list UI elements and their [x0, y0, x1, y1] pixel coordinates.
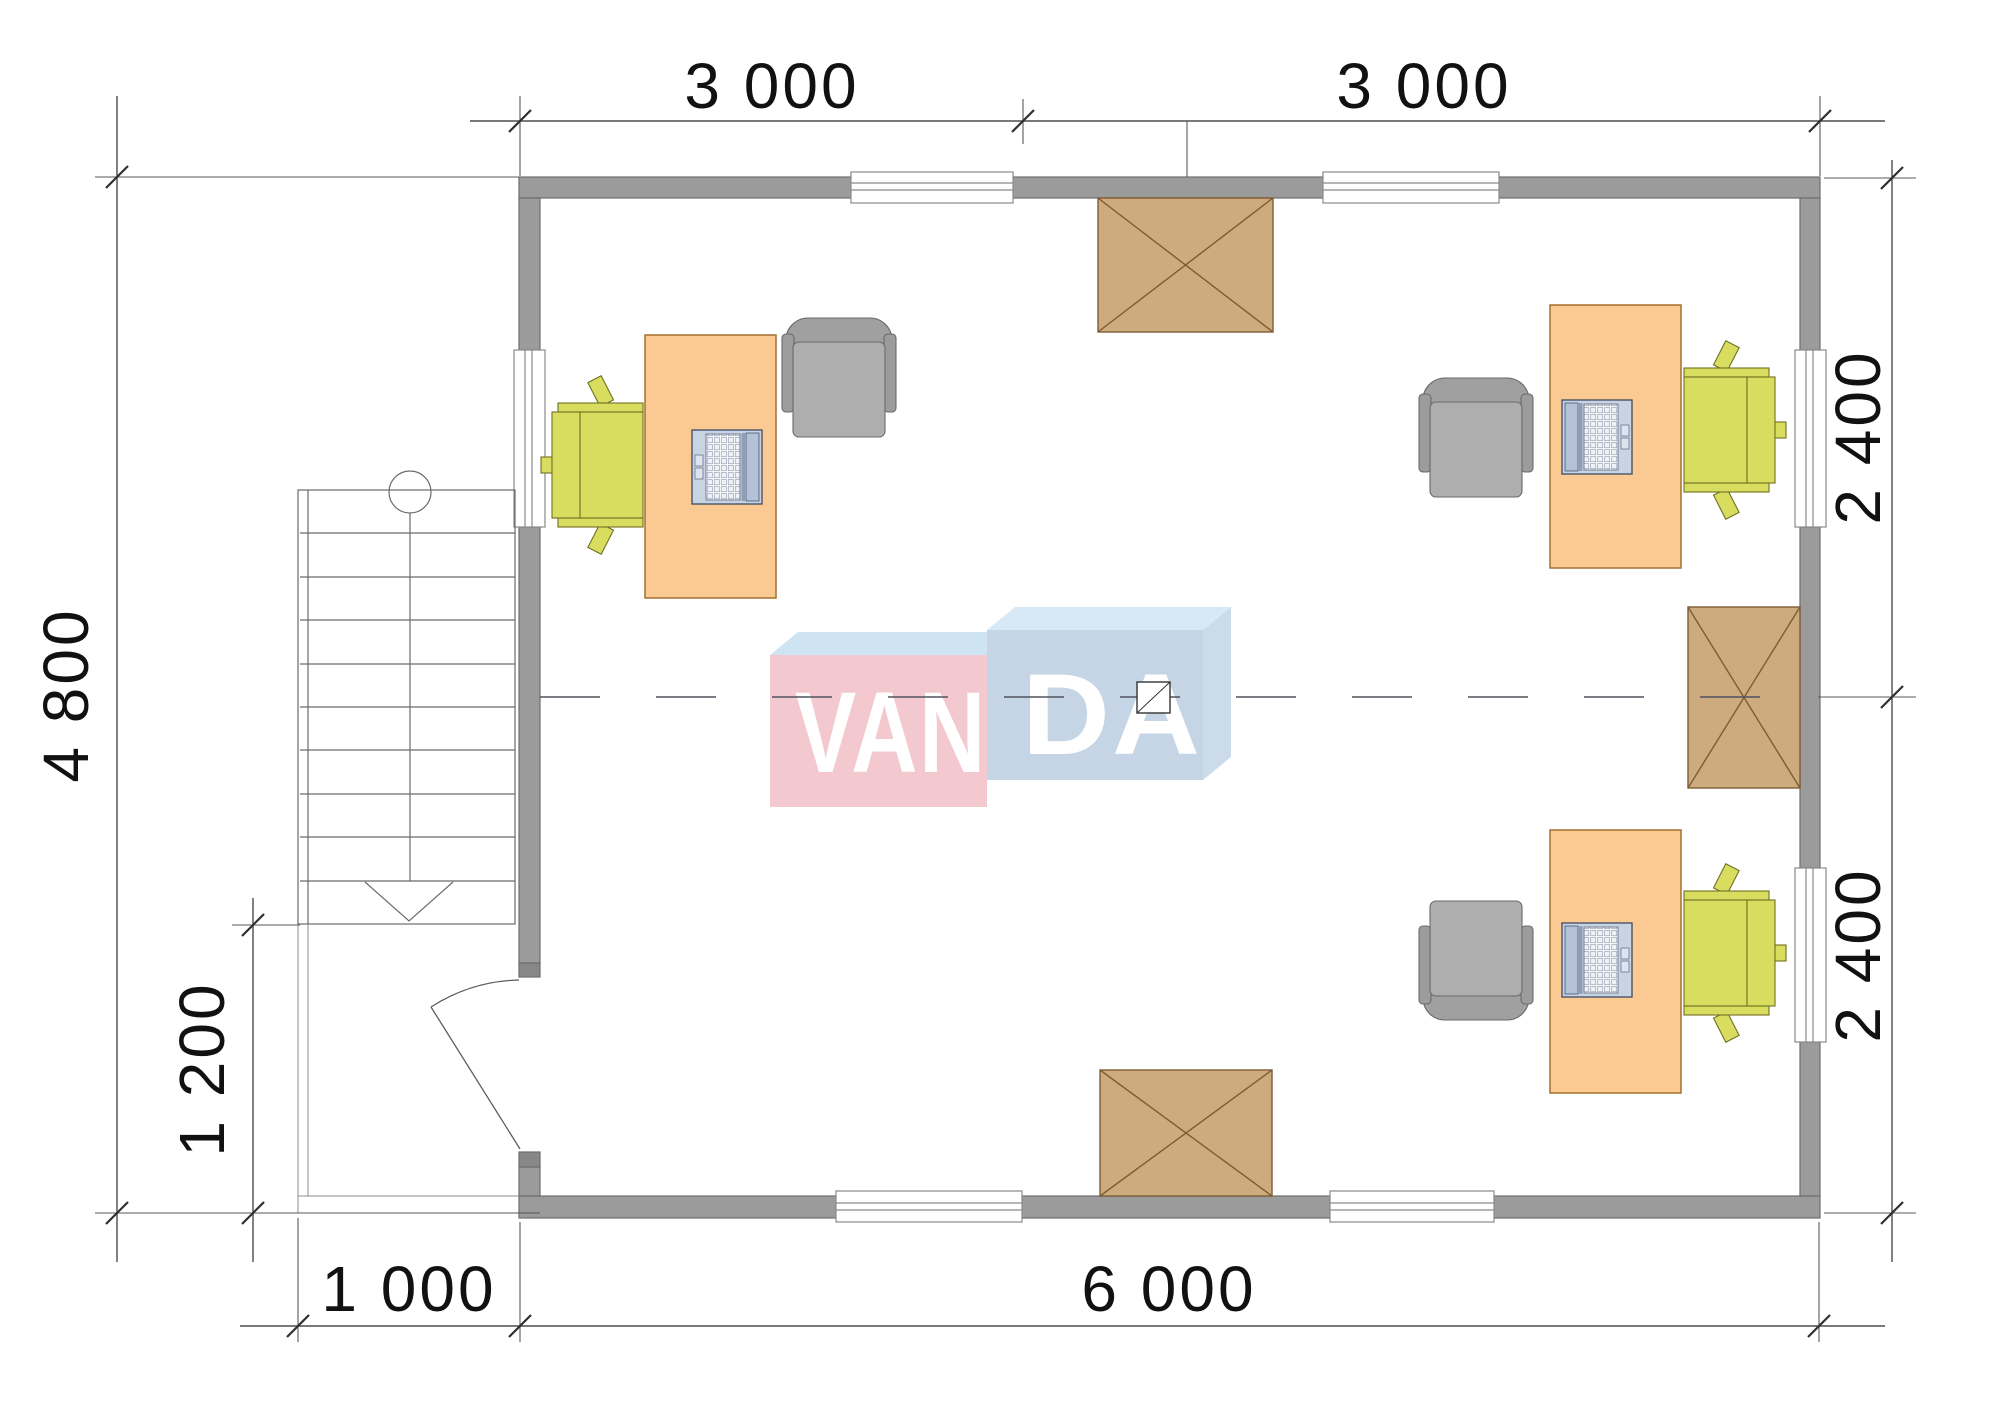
stair-treads: [300, 533, 515, 881]
section-marker-square: [1137, 682, 1170, 713]
wall-left-middle: [519, 527, 540, 963]
heater-icon-top: [1098, 198, 1273, 332]
visitor-armchair: [782, 318, 896, 437]
wall-right-upper: [1800, 198, 1820, 350]
workstation-top-right: [1419, 305, 1786, 568]
task-chair: [541, 376, 643, 554]
floor-plan-svg: VAN DA 3 000 3 000: [0, 0, 2000, 1410]
workstation-bottom-right: [1419, 830, 1786, 1093]
window-top-2: [1323, 172, 1499, 203]
heater-icon-bottom: [1100, 1070, 1272, 1196]
watermark-box-blue-side: [1203, 607, 1231, 780]
dimension-bottom: 1 000 6 000: [240, 1218, 1885, 1342]
task-chair: [1684, 341, 1786, 519]
door-jamb-top: [519, 963, 540, 977]
wall-top: [519, 177, 1820, 198]
door-swing-arc: [431, 980, 519, 1007]
window-left-1: [514, 350, 545, 527]
dim-label-top-left: 3 000: [684, 50, 859, 122]
dim-label-left-total: 4 800: [30, 607, 102, 782]
visitor-armchair: [1419, 901, 1533, 1020]
window-top-1: [851, 172, 1013, 203]
watermark-text-da: DA: [1022, 651, 1202, 779]
porch-outline: [298, 924, 519, 1213]
stair-newel-circle: [389, 471, 431, 513]
dim-label-bottom-total: 6 000: [1081, 1253, 1256, 1325]
dimension-right: 2 400 2 400: [1818, 160, 1916, 1262]
wall-left-lower: [519, 1167, 540, 1196]
watermark-box-pink-top: [770, 632, 1015, 655]
laptop-icon: [1562, 923, 1632, 997]
staircase: [298, 471, 519, 1213]
wall-right-lower: [1800, 1042, 1820, 1196]
dim-label-right-lower: 2 400: [1822, 867, 1894, 1042]
window-bottom-1: [836, 1191, 1022, 1222]
dim-label-left-porch: 1 200: [166, 981, 238, 1156]
task-chair: [1684, 864, 1786, 1042]
watermark-text-van: VAN: [795, 669, 987, 797]
dim-label-top-right: 3 000: [1336, 50, 1511, 122]
dimension-left: 4 800 1 200: [30, 96, 540, 1262]
door-jamb-bottom: [519, 1152, 540, 1167]
workstation-top-left: [541, 318, 896, 598]
dimension-top: 3 000 3 000: [470, 50, 1885, 177]
visitor-armchair: [1419, 378, 1533, 497]
stair-direction-arrow: [365, 882, 453, 921]
dim-label-bottom-porch: 1 000: [321, 1253, 496, 1325]
wall-bottom: [519, 1196, 1820, 1218]
window-bottom-2: [1330, 1191, 1494, 1222]
entry-door: [431, 980, 520, 1149]
watermark-box-blue-top: [987, 607, 1231, 630]
laptop-icon: [1562, 400, 1632, 474]
wall-right-middle: [1800, 527, 1820, 868]
laptop-icon: [692, 430, 762, 504]
dim-label-right-upper: 2 400: [1822, 349, 1894, 524]
door-leaf: [431, 1007, 520, 1149]
wall-left-upper: [519, 198, 540, 350]
floor-plan-canvas: VAN DA 3 000 3 000: [0, 0, 2000, 1410]
